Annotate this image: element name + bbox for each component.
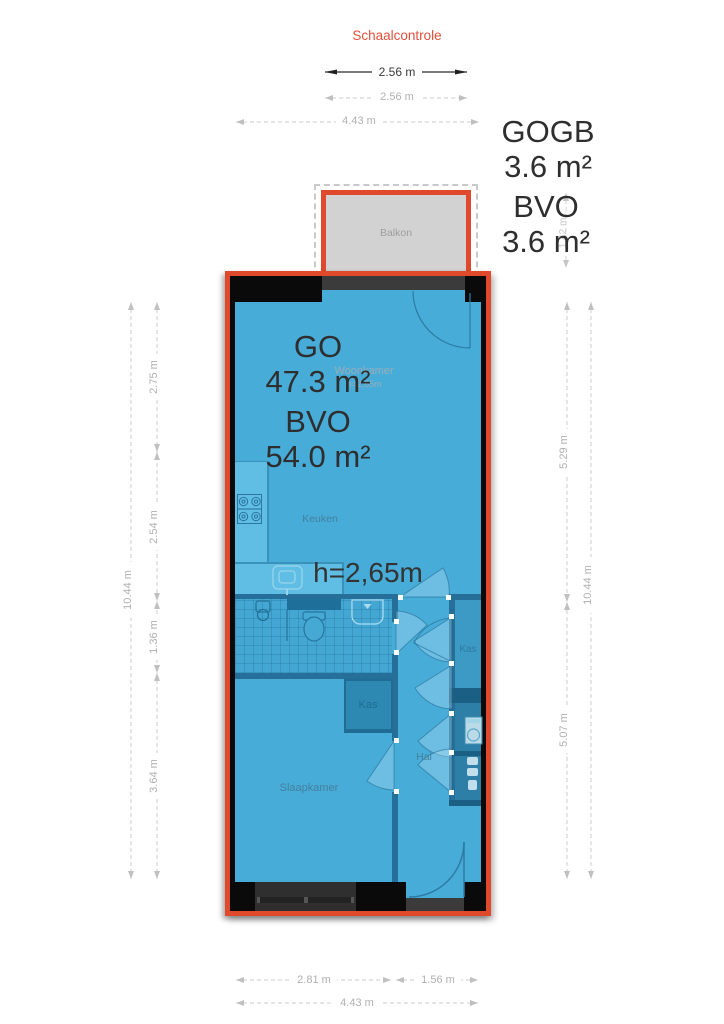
svg-text:10.44 m: 10.44 m [582,565,594,605]
svg-text:1.56 m: 1.56 m [421,974,455,986]
svg-text:2.75 m: 2.75 m [148,360,160,394]
svg-text:10.44 m: 10.44 m [122,570,134,610]
svg-text:2.56 m: 2.56 m [380,91,414,103]
svg-text:5.29 m: 5.29 m [558,435,570,469]
svg-text:4.43 m: 4.43 m [340,997,374,1009]
svg-text:2.54 m: 2.54 m [148,510,160,544]
svg-text:3.64 m: 3.64 m [148,759,160,793]
svg-text:1.36 m: 1.36 m [148,620,160,654]
svg-text:4.43 m: 4.43 m [342,115,376,127]
svg-text:5.07 m: 5.07 m [558,713,570,747]
svg-text:2.56 m: 2.56 m [379,65,416,79]
svg-text:2.81 m: 2.81 m [297,974,331,986]
